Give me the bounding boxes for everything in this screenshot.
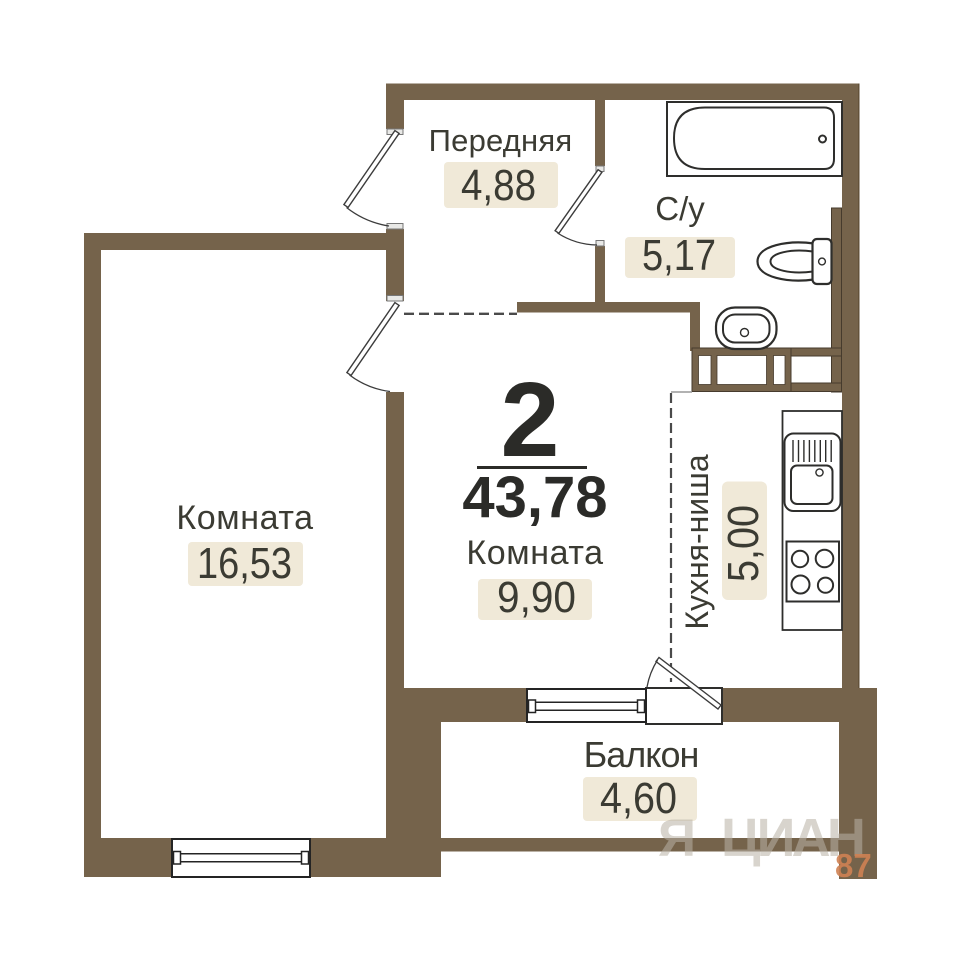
- svg-text:Передняя: Передняя: [429, 123, 573, 158]
- svg-text:Кухня-ниша: Кухня-ниша: [679, 454, 715, 630]
- svg-text:2: 2: [501, 361, 560, 479]
- svg-text:5,00: 5,00: [719, 505, 768, 582]
- svg-text:Я: Я: [658, 809, 696, 868]
- svg-text:С/у: С/у: [655, 190, 705, 227]
- svg-text:9,90: 9,90: [497, 573, 576, 622]
- svg-text:Комната: Комната: [176, 499, 313, 537]
- svg-text:Балкон: Балкон: [584, 734, 699, 775]
- svg-text:5,17: 5,17: [642, 231, 716, 280]
- svg-text:Комната: Комната: [466, 534, 603, 572]
- svg-text:4,88: 4,88: [461, 161, 536, 210]
- svg-text:16,53: 16,53: [197, 539, 292, 588]
- svg-text:43,78: 43,78: [462, 465, 607, 530]
- svg-text:87: 87: [835, 847, 872, 884]
